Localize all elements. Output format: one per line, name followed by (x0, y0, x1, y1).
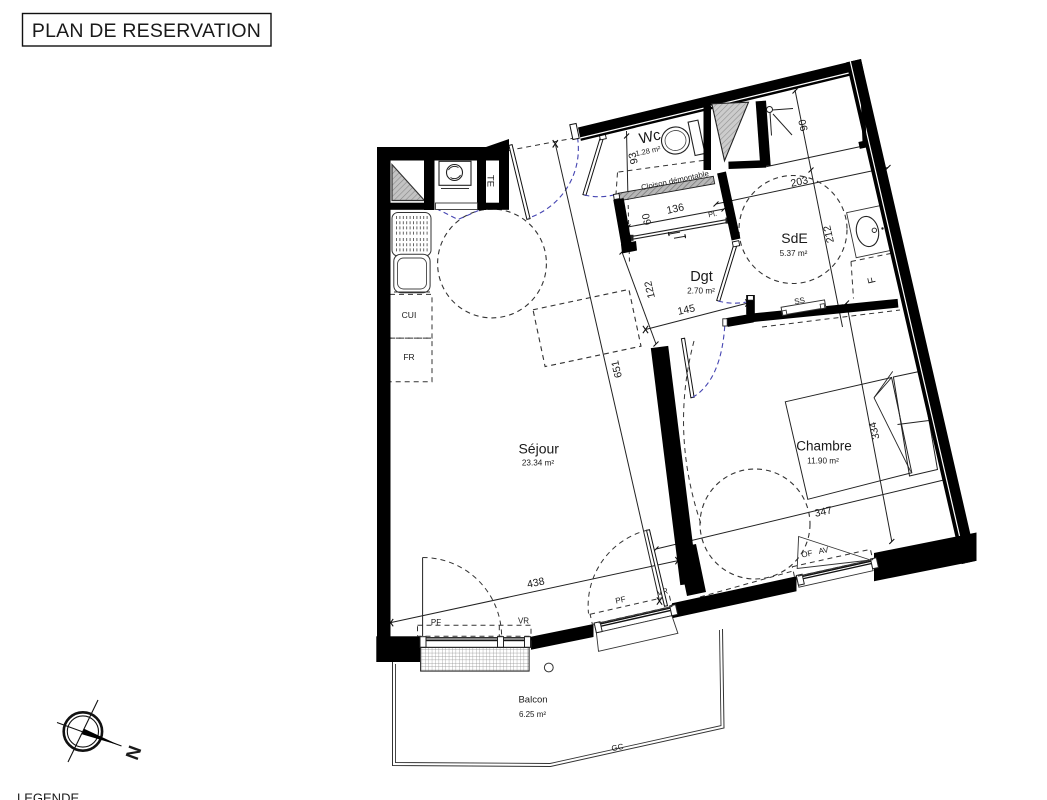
svg-text:6.25 m²: 6.25 m² (519, 710, 546, 719)
svg-text:2.70 m²: 2.70 m² (687, 287, 715, 296)
svg-text:TE: TE (485, 175, 496, 187)
svg-text:SdE: SdE (781, 230, 807, 246)
svg-text:FR: FR (403, 352, 414, 362)
svg-text:CUI: CUI (402, 310, 417, 320)
svg-text:LEGENDE: LEGENDE (17, 791, 79, 800)
svg-text:Chambre: Chambre (796, 439, 852, 454)
svg-text:VR: VR (518, 617, 529, 626)
svg-text:23.34 m²: 23.34 m² (522, 459, 555, 468)
svg-text:Séjour: Séjour (518, 441, 559, 457)
svg-text:SS: SS (794, 296, 806, 307)
svg-text:5.37 m²: 5.37 m² (780, 249, 808, 258)
svg-text:PLAN DE RESERVATION: PLAN DE RESERVATION (32, 20, 261, 42)
svg-text:11.90 m²: 11.90 m² (807, 457, 839, 466)
svg-text:PF: PF (431, 618, 441, 627)
svg-text:Dgt: Dgt (690, 269, 713, 285)
svg-text:Balcon: Balcon (518, 695, 547, 706)
svg-text:Pl.: Pl. (707, 209, 717, 220)
